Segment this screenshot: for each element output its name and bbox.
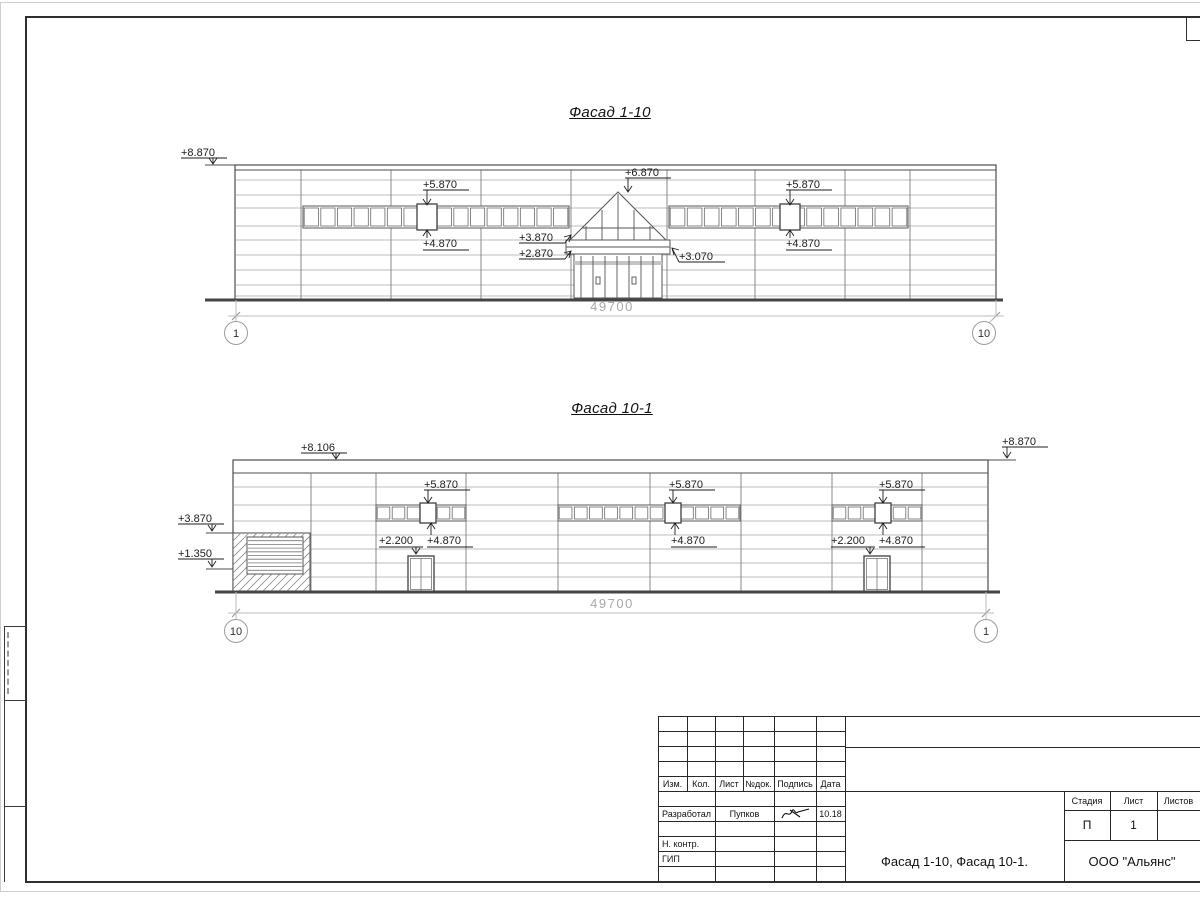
svg-text:+3.070: +3.070 (679, 251, 713, 263)
facade-drawings: 49700110+8.870+5.870+4.870+6.870+3.870+2… (0, 0, 1200, 900)
tb-sheet-value: 1 (1110, 810, 1157, 840)
tb-role-developed: Разработал (659, 806, 717, 821)
svg-text:+2.870: +2.870 (519, 248, 553, 260)
svg-text:+5.870: +5.870 (879, 479, 913, 491)
svg-text:+2.200: +2.200 (831, 535, 865, 547)
window-strip (303, 204, 569, 230)
tb-role-gip: ГИП (659, 851, 717, 866)
svg-text:+5.870: +5.870 (424, 479, 458, 491)
svg-text:+4.870: +4.870 (671, 535, 705, 547)
axis-bubble: 1 (225, 300, 248, 345)
svg-text:10: 10 (978, 328, 990, 340)
door (408, 556, 434, 592)
elevation-marker: +8.106 (301, 442, 347, 459)
tb-company: ООО "Альянс" (1064, 840, 1200, 882)
svg-text:+4.870: +4.870 (423, 238, 457, 250)
dimension: 49700 (228, 596, 994, 617)
svg-text:+4.870: +4.870 (786, 238, 820, 250)
marked-window (417, 204, 437, 230)
svg-text:49700: 49700 (590, 299, 634, 314)
axis-bubble: 10 (225, 592, 248, 643)
tb-header-list: Лист (715, 776, 743, 791)
axis-bubble: 10 (973, 300, 997, 345)
louver-grille (247, 537, 303, 574)
svg-text:+5.870: +5.870 (423, 179, 457, 191)
tb-doc-title: Фасад 1-10, Фасад 10-1. (845, 840, 1064, 882)
marked-window (420, 503, 436, 523)
marked-window (665, 503, 681, 523)
window-strip (376, 503, 466, 523)
marked-window (875, 503, 891, 523)
svg-text:49700: 49700 (590, 596, 634, 611)
axis-bubble: 1 (975, 592, 998, 643)
tb-header-ndok: №док. (743, 776, 774, 791)
tb-sheets-label: Листов (1157, 792, 1200, 810)
svg-text:+2.200: +2.200 (379, 535, 413, 547)
svg-text:+4.870: +4.870 (879, 535, 913, 547)
window-strip (832, 503, 922, 523)
svg-text:+4.870: +4.870 (427, 535, 461, 547)
signature (780, 806, 812, 821)
tb-header-izm: Изм. (658, 776, 687, 791)
tb-header-podpis: Подпись (774, 776, 816, 791)
svg-text:1: 1 (983, 626, 989, 638)
svg-text:+1.350: +1.350 (178, 548, 212, 560)
tb-stage-value: П (1064, 810, 1110, 840)
svg-text:+3.870: +3.870 (519, 232, 553, 244)
window-strip (669, 204, 908, 230)
door (864, 556, 890, 592)
window-strip (558, 503, 740, 523)
svg-text:+8.870: +8.870 (181, 147, 215, 159)
elevation-marker: +8.870 (181, 147, 227, 164)
svg-text:+3.870: +3.870 (178, 513, 212, 525)
drawing-sheet: { "facade1": { "id": "1-10", "title": "Ф… (0, 0, 1200, 900)
svg-text:1: 1 (233, 328, 239, 340)
svg-text:+8.870: +8.870 (1002, 436, 1036, 448)
tb-developer-name: Пупков (715, 806, 774, 821)
svg-text:+5.870: +5.870 (669, 479, 703, 491)
tb-header-kol: Кол. (687, 776, 715, 791)
svg-text:+8.106: +8.106 (301, 442, 335, 454)
elevation-marker: +8.870 (1002, 436, 1048, 458)
elevation-marker: +3.870 (178, 513, 224, 531)
tb-date: 10.18 (816, 806, 845, 821)
tb-stage-label: Стадия (1064, 792, 1110, 810)
svg-text:+5.870: +5.870 (786, 179, 820, 191)
dimension: 49700 (228, 299, 1004, 320)
tb-sheet-label: Лист (1110, 792, 1157, 810)
facade-1-10: 49700110 (205, 165, 1004, 345)
svg-text:+6.870: +6.870 (625, 167, 659, 179)
marked-window (780, 204, 800, 230)
elevation-marker: +1.350 (178, 548, 224, 567)
tb-header-data: Дата (816, 776, 845, 791)
svg-text:10: 10 (230, 626, 242, 638)
tb-role-ncontr: Н. контр. (659, 836, 717, 851)
